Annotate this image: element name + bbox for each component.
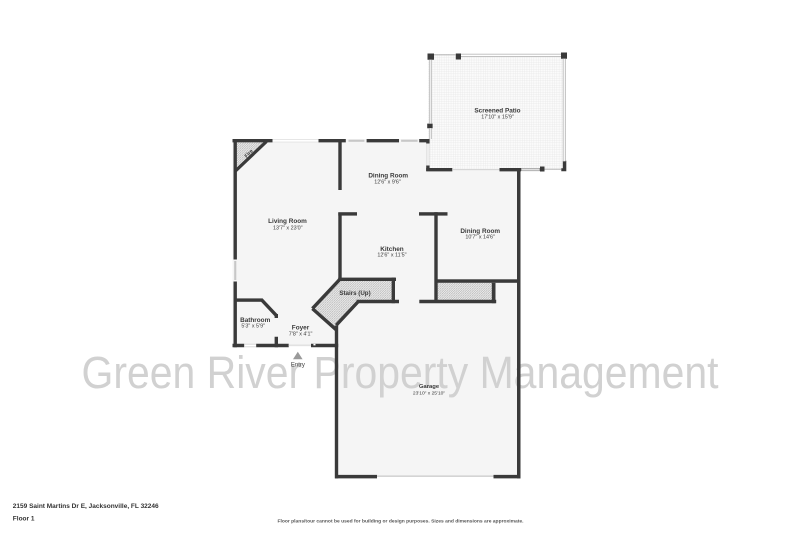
svg-text:7'8" x 4'1": 7'8" x 4'1" — [289, 332, 313, 338]
svg-text:17'10" x 15'9": 17'10" x 15'9" — [481, 114, 514, 120]
svg-text:Living Room: Living Room — [268, 218, 307, 225]
svg-text:Floor plans/tour cannot be use: Floor plans/tour cannot be used for buil… — [277, 518, 524, 524]
svg-text:Foyer: Foyer — [292, 324, 310, 331]
svg-text:Garage: Garage — [419, 384, 440, 390]
svg-text:Stairs (Up): Stairs (Up) — [339, 290, 370, 297]
svg-text:5'3" x 5'9": 5'3" x 5'9" — [241, 324, 265, 330]
svg-text:Dining Room: Dining Room — [368, 172, 408, 179]
svg-text:Entry: Entry — [291, 362, 305, 368]
svg-text:Screened Patio: Screened Patio — [474, 107, 520, 114]
svg-text:2159 Saint Martins Dr E, Jacks: 2159 Saint Martins Dr E, Jacksonville, F… — [13, 503, 159, 510]
svg-text:Green River Property Managemen: Green River Property Management — [82, 347, 719, 398]
svg-text:12'6" x 11'5": 12'6" x 11'5" — [377, 252, 406, 258]
svg-text:10'7" x 14'6": 10'7" x 14'6" — [465, 234, 495, 240]
svg-text:Floor 1: Floor 1 — [13, 515, 35, 522]
svg-text:13'7" x 23'0": 13'7" x 23'0" — [273, 225, 303, 231]
svg-text:12'6" x 9'6": 12'6" x 9'6" — [374, 179, 401, 185]
svg-text:23'10" x 25'10": 23'10" x 25'10" — [413, 390, 446, 396]
